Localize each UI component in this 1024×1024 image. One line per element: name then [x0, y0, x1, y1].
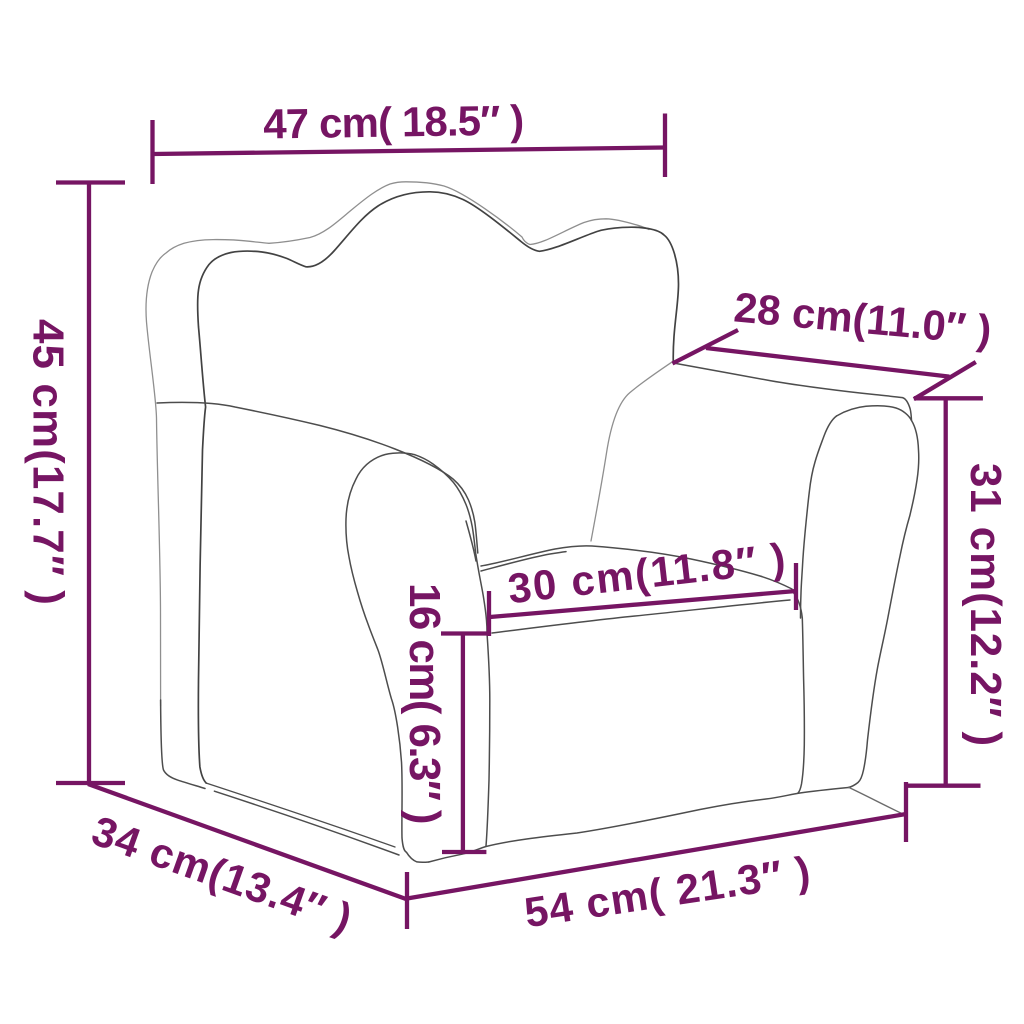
svg-text:16 cm( 6.3″ ): 16 cm( 6.3″ ): [400, 583, 449, 823]
svg-text:45 cm(17.7″ ): 45 cm(17.7″ ): [24, 319, 73, 606]
svg-text:47 cm( 18.5″ ): 47 cm( 18.5″ ): [263, 96, 524, 147]
svg-text:31 cm(12.2″ ): 31 cm(12.2″ ): [961, 463, 1010, 747]
